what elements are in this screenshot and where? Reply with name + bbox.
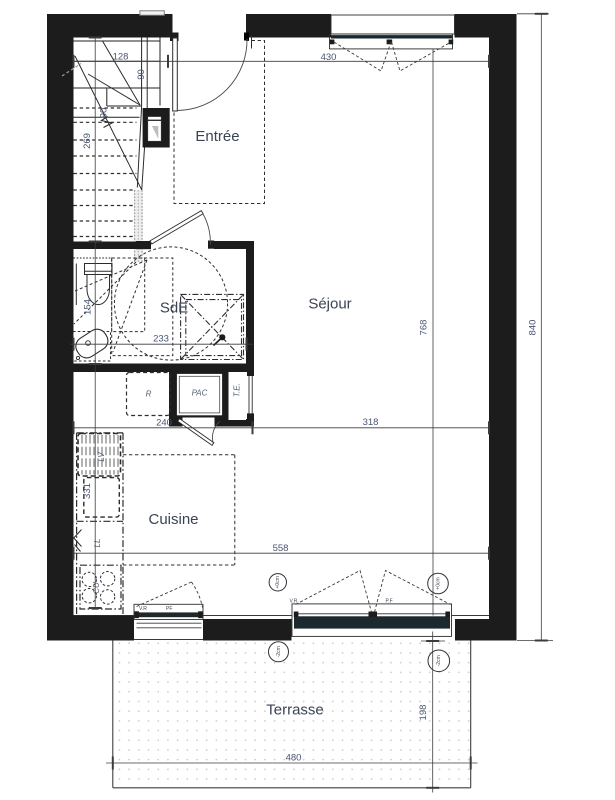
svg-text:558: 558 — [273, 543, 289, 554]
svg-text:LL: LL — [93, 539, 102, 548]
svg-text:V.R.: V.R. — [290, 599, 299, 605]
svg-text:CU: CU — [92, 582, 101, 594]
svg-text:840: 840 — [528, 320, 539, 336]
svg-text:430: 430 — [321, 52, 337, 63]
svg-text:Terrasse: Terrasse — [266, 702, 324, 719]
svg-text:154: 154 — [83, 299, 94, 315]
svg-text:269: 269 — [82, 133, 93, 149]
svg-text:V.R: V.R — [139, 606, 147, 612]
svg-text:-2cm: -2cm — [436, 655, 442, 666]
svg-text:PAC: PAC — [192, 389, 208, 398]
svg-text:+0cm: +0cm — [275, 576, 281, 588]
svg-text:768: 768 — [419, 320, 430, 336]
svg-text:PF: PF — [166, 606, 172, 612]
svg-text:R: R — [146, 390, 152, 399]
svg-text:Séjour: Séjour — [308, 296, 351, 313]
svg-text:T.E.: T.E. — [232, 383, 241, 397]
svg-text:233: 233 — [153, 334, 169, 345]
svg-text:LV: LV — [97, 452, 106, 462]
svg-text:-2cm: -2cm — [276, 646, 282, 657]
svg-text:331: 331 — [82, 483, 93, 499]
svg-text:P.F: P.F — [386, 599, 393, 605]
svg-text:128: 128 — [113, 51, 129, 62]
svg-text:198: 198 — [418, 705, 429, 721]
svg-text:Cuisine: Cuisine — [148, 511, 198, 528]
svg-text:318: 318 — [363, 417, 379, 428]
svg-text:90: 90 — [99, 108, 110, 119]
svg-text:Entrée: Entrée — [195, 128, 239, 145]
svg-text:+0cm: +0cm — [435, 577, 441, 589]
svg-text:SdE: SdE — [160, 300, 188, 317]
svg-text:240: 240 — [156, 417, 172, 428]
svg-text:480: 480 — [286, 753, 302, 764]
svg-text:90: 90 — [136, 69, 147, 80]
